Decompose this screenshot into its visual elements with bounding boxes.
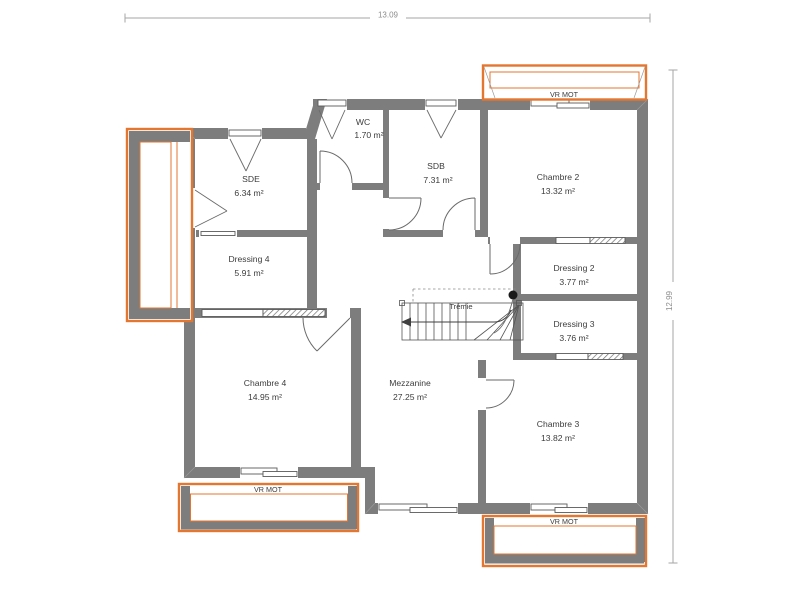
room-area-sde: 6.34 m² [234, 188, 263, 198]
window-sde-dressing4 [201, 232, 235, 236]
shutter-label-bottom-right: VR MOT [550, 517, 579, 526]
sliding-door-dressing4-pocket [202, 310, 263, 317]
sliding-door-dressing2-panel [590, 238, 625, 244]
door-chambre4 [303, 318, 350, 351]
sliding-door-dressing2-pocket [556, 238, 590, 244]
room-name-sde: SDE [242, 174, 260, 184]
room-name-chambre2: Chambre 2 [537, 172, 580, 182]
stair-direction-arrow [401, 318, 411, 327]
room-name-chambre4: Chambre 4 [244, 378, 287, 388]
shutter-box-bottom-right: VR MOT [483, 516, 646, 566]
room-area-mezzanine: 27.25 m² [393, 392, 427, 402]
room-area-wc: 1.70 m² [354, 130, 383, 140]
room-name-dressing3: Dressing 3 [553, 319, 594, 329]
window-sde-swing [230, 139, 261, 171]
window-sdb [426, 100, 456, 106]
dimension-top: 13.09 [125, 9, 650, 23]
door-wc [320, 151, 352, 183]
dimension-right: 12.99 [665, 70, 678, 563]
room-label-dressing2: Dressing 2 3.77 m² [553, 263, 594, 287]
room-labels: SDE 6.34 m² WC 1.70 m² SDB 7.31 m² Chamb… [228, 117, 594, 443]
room-name-wc: WC [356, 117, 370, 127]
room-label-chambre3: Chambre 3 13.82 m² [537, 419, 580, 443]
room-area-dressing2: 3.77 m² [559, 277, 588, 287]
room-label-mezzanine: Mezzanine 27.25 m² [389, 378, 431, 402]
shutter-bay-left [127, 129, 192, 321]
stair-newel-post [509, 291, 518, 300]
door-sdb-left [389, 198, 421, 230]
room-label-chambre2: Chambre 2 13.32 m² [537, 172, 580, 196]
window-mezzanine-b [410, 508, 457, 513]
window-wc-swing [319, 110, 345, 139]
dimension-right-label: 12.99 [665, 290, 674, 311]
interior-walls [195, 110, 648, 503]
room-name-sdb: SDB [427, 161, 445, 171]
window-chambre2-b [557, 103, 589, 108]
room-label-dressing3: Dressing 3 3.76 m² [553, 319, 594, 343]
door-bay-sde-swing [195, 190, 227, 227]
window-sde [229, 130, 261, 136]
window-chambre3-b [555, 508, 587, 513]
window-chambre4-b [263, 472, 297, 477]
room-label-wc: WC 1.70 m² [354, 117, 383, 140]
room-name-dressing4: Dressing 4 [228, 254, 269, 264]
sliding-door-dressing3-panel [588, 354, 623, 360]
shutter-label-bottom-left: VR MOT [254, 485, 283, 494]
shutter-box-top-right: VR MOT [483, 66, 646, 100]
room-label-sdb: SDB 7.31 m² [423, 161, 452, 185]
sliding-door-dressing3-pocket [556, 354, 588, 360]
room-area-dressing4: 5.91 m² [234, 268, 263, 278]
room-area-chambre4: 14.95 m² [248, 392, 282, 402]
room-name-mezzanine: Mezzanine [389, 378, 431, 388]
stairwell-label: Trémie [449, 302, 472, 311]
window-wc [318, 100, 346, 106]
windows [199, 100, 589, 513]
shutter-label-top-right: VR MOT [550, 90, 579, 99]
room-label-sde: SDE 6.34 m² [234, 174, 263, 198]
dimension-top-label: 13.09 [378, 11, 399, 20]
room-label-chambre4: Chambre 4 14.95 m² [244, 378, 287, 402]
floor-plan-canvas: 13.09 12.99 [0, 0, 805, 600]
exterior-walls [184, 99, 648, 514]
shutter-box-bottom-left: VR MOT [179, 484, 358, 531]
staircase: Trémie [400, 289, 524, 340]
room-name-chambre3: Chambre 3 [537, 419, 580, 429]
door-chambre3 [486, 380, 514, 408]
room-area-chambre2: 13.32 m² [541, 186, 575, 196]
door-sdb-bottom [443, 198, 475, 230]
room-label-dressing4: Dressing 4 5.91 m² [228, 254, 269, 278]
room-name-dressing2: Dressing 2 [553, 263, 594, 273]
room-area-dressing3: 3.76 m² [559, 333, 588, 343]
room-area-chambre3: 13.82 m² [541, 433, 575, 443]
room-area-sdb: 7.31 m² [423, 175, 452, 185]
sliding-door-dressing4-panel [263, 310, 325, 317]
window-sdb-swing [427, 110, 456, 138]
floor-plan-page: 13.09 12.99 [0, 0, 805, 600]
